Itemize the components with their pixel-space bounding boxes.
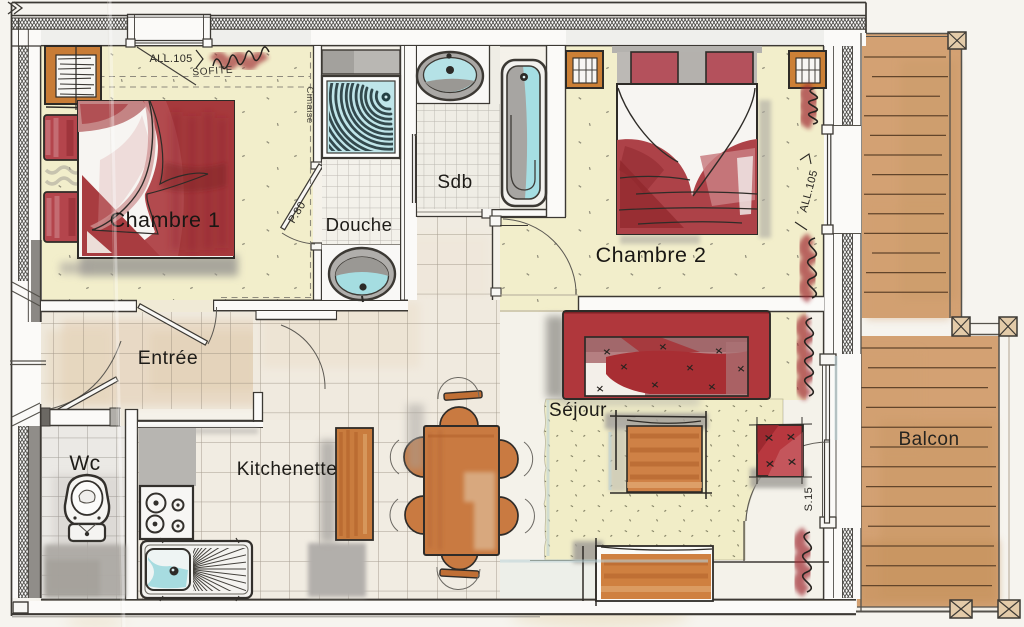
svg-text:Sdb: Sdb [437, 172, 472, 193]
svg-text:Cimaise: Cimaise [304, 86, 315, 123]
svg-text:Séjour: Séjour [549, 400, 607, 421]
svg-text:Kitchenette: Kitchenette [237, 459, 338, 480]
svg-text:Douche: Douche [326, 214, 393, 235]
svg-text:Entrée: Entrée [138, 347, 198, 369]
svg-text:S.15: S.15 [803, 487, 815, 512]
svg-text:Balcon: Balcon [898, 429, 959, 450]
svg-text:Chambre 2: Chambre 2 [596, 243, 707, 267]
svg-text:Chambre 1: Chambre 1 [110, 208, 221, 232]
svg-text:Wc: Wc [69, 452, 100, 475]
